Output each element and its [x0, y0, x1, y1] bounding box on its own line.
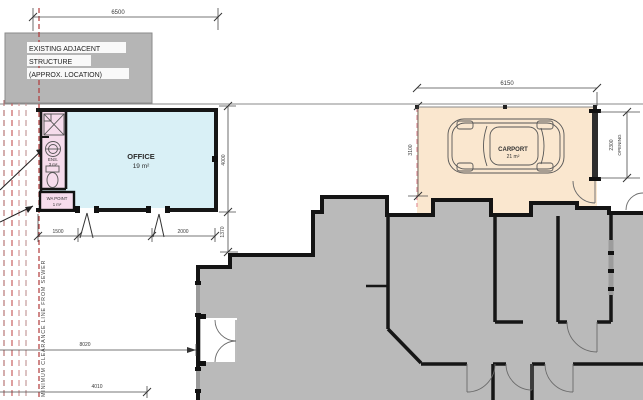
existing-house — [195, 197, 643, 400]
carport-name: CARPORT — [498, 147, 528, 153]
carport-post — [593, 105, 597, 109]
window-band — [609, 240, 614, 295]
existing-structure-text-2: STRUCTURE — [29, 59, 72, 66]
office-door-marks — [80, 213, 164, 238]
wa-point-area: 1 m² — [53, 202, 62, 207]
door-recess — [201, 318, 237, 362]
sewer-clearance-lines — [4, 100, 26, 400]
door-jamb — [198, 361, 206, 366]
dim-site-width-value: 6500 — [111, 10, 125, 16]
leader-line — [0, 148, 44, 190]
office-area: 19 m² — [133, 163, 150, 170]
floor-plan-drawing: EXISTING ADJACENT STRUCTURE (APPROX. LOC… — [0, 0, 643, 400]
dim-opening-word: OPENING — [617, 134, 622, 156]
dim-sewer-to-house: 8020 — [0, 342, 196, 356]
dim-carport-opening: 2300 OPENING — [600, 108, 640, 182]
dim-office-depth: 4000 — [219, 102, 236, 216]
window-jamb — [195, 367, 201, 371]
door-swing-line — [80, 213, 87, 238]
window-jamb — [608, 269, 614, 273]
window-band — [196, 284, 200, 314]
carport-area: 21 m² — [507, 154, 520, 160]
carport: CARPORT 21 m² — [415, 105, 643, 213]
door-post — [94, 206, 99, 213]
window-jamb — [195, 281, 201, 285]
dim-office-to-house-value: 1370 — [220, 226, 226, 237]
house-fill — [198, 197, 643, 400]
office-block: ENS. 3 m² WA POINT 1 m² OFFICE 19 m² — [36, 108, 218, 238]
wall-cap — [589, 109, 601, 113]
office-name: OFFICE — [127, 152, 155, 161]
dim-sewer-to-house-value: 8020 — [79, 342, 90, 348]
floor-plan-sheet: EXISTING ADJACENT STRUCTURE (APPROX. LOC… — [0, 0, 643, 400]
dim-sewer-offset: 4010 — [0, 384, 151, 398]
wall-cap — [589, 177, 601, 181]
wall-nub — [212, 156, 218, 162]
door-swing-line — [87, 213, 93, 238]
dim-opening-right-value: 2000 — [177, 229, 188, 235]
door-post — [75, 206, 80, 213]
wa-point-box — [40, 192, 74, 210]
window-jamb — [608, 287, 614, 291]
wa-point-name: WA POINT — [47, 196, 68, 201]
clearance-note: MINIMUM CLEARANCE LINE FROM SEWER — [41, 260, 47, 397]
side-door-swing — [626, 193, 643, 210]
dim-office-depth-value: 4000 — [221, 154, 227, 165]
window-jamb — [195, 389, 201, 393]
dim-carport-width-value: 6150 — [500, 81, 514, 87]
door-post — [146, 206, 151, 213]
window-band — [196, 370, 200, 390]
door-swing-line — [159, 214, 164, 237]
existing-structure-text-1: EXISTING ADJACENT — [29, 46, 101, 53]
dim-opening-left-value: 1500 — [52, 229, 63, 235]
dim-carport-width: 6150 — [413, 81, 601, 106]
existing-structure-text-3: (APPROX. LOCATION) — [29, 72, 102, 79]
dim-site-width: 6500 — [29, 8, 222, 31]
carport-wall-right — [592, 111, 598, 179]
dim-arrowhead — [187, 347, 196, 353]
dim-office-to-house: 1370 — [220, 212, 238, 256]
window-jamb — [608, 251, 614, 255]
dim-sewer-offset-value: 4010 — [91, 384, 102, 390]
door-jamb — [198, 314, 206, 319]
ensuite-area: 3 m² — [49, 162, 58, 167]
carport-post — [503, 105, 507, 109]
double-door — [198, 314, 237, 366]
dim-carport-depth-value: 3100 — [408, 144, 414, 155]
dim-office-openings: 1500 2000 — [34, 214, 219, 242]
dim-opening-size-value: 2300 — [609, 139, 615, 150]
door-post — [165, 206, 170, 213]
